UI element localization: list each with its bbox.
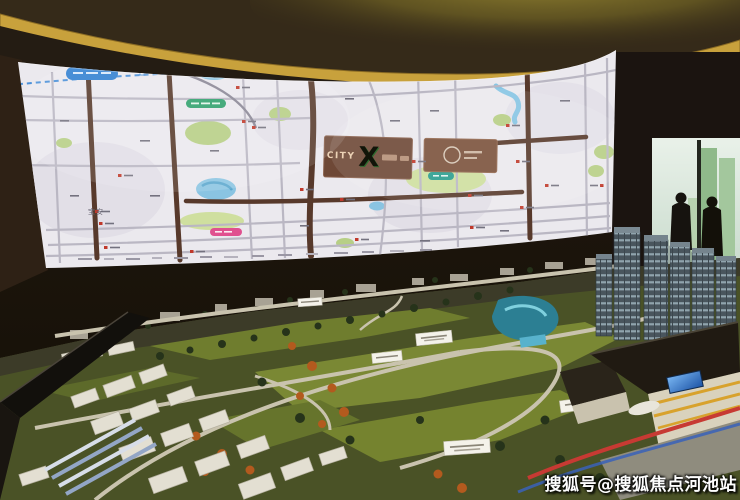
scene-canvas: [0, 0, 740, 500]
showroom-photo: CITYX 宝安 搜狐号@搜狐焦点河池站: [0, 0, 740, 500]
watermark-text: 搜狐号@搜狐焦点河池站: [545, 470, 738, 495]
scale-model: [0, 227, 740, 500]
